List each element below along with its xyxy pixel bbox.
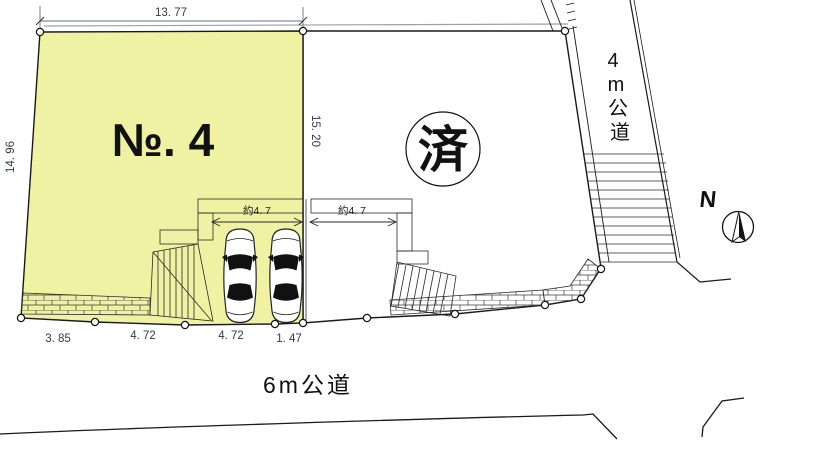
dim-bottom-4: 1. 47 — [276, 333, 302, 345]
site-plan-svg: N №. 4 済 13. 77 14. 96 15. 20 約4. 7 約4. … — [0, 0, 820, 449]
road-south-lines — [0, 398, 744, 439]
car-1 — [222, 229, 258, 323]
road-east-label-char-1: m — [608, 74, 625, 96]
compass-n-label: N — [698, 186, 717, 212]
road-east-label-char-3: 道 — [610, 121, 630, 144]
car-2 — [268, 229, 304, 323]
road-east-label-char-0: 4 — [607, 50, 618, 72]
north-compass: N — [698, 186, 753, 242]
dim-top-label: 13. 77 — [155, 7, 187, 19]
plot-no4-shape — [21, 31, 303, 325]
plot-no4-label: №. 4 — [112, 114, 215, 166]
parking-dim-1-label: 約4. 7 — [243, 204, 271, 217]
top-boundary-double-line — [44, 24, 568, 26]
road-east-label-char-2: 公 — [608, 98, 628, 120]
dim-left-label: 14. 96 — [5, 141, 17, 173]
site-plan: N №. 4 済 13. 77 14. 96 15. 20 約4. 7 約4. … — [0, 0, 820, 449]
road-south-label: 6m公道 — [263, 372, 353, 398]
dim-bottom-1: 3. 85 — [45, 333, 71, 345]
plot-sold-label: 済 — [418, 122, 469, 178]
dim-bottom-2: 4. 72 — [130, 330, 156, 342]
dim-bottom-3: 4. 72 — [218, 330, 244, 342]
road-east-label: 4 m 公 道 — [607, 50, 630, 144]
parking-dim-2-label: 約4. 7 — [338, 204, 366, 217]
dim-right-label: 15. 20 — [309, 115, 321, 147]
